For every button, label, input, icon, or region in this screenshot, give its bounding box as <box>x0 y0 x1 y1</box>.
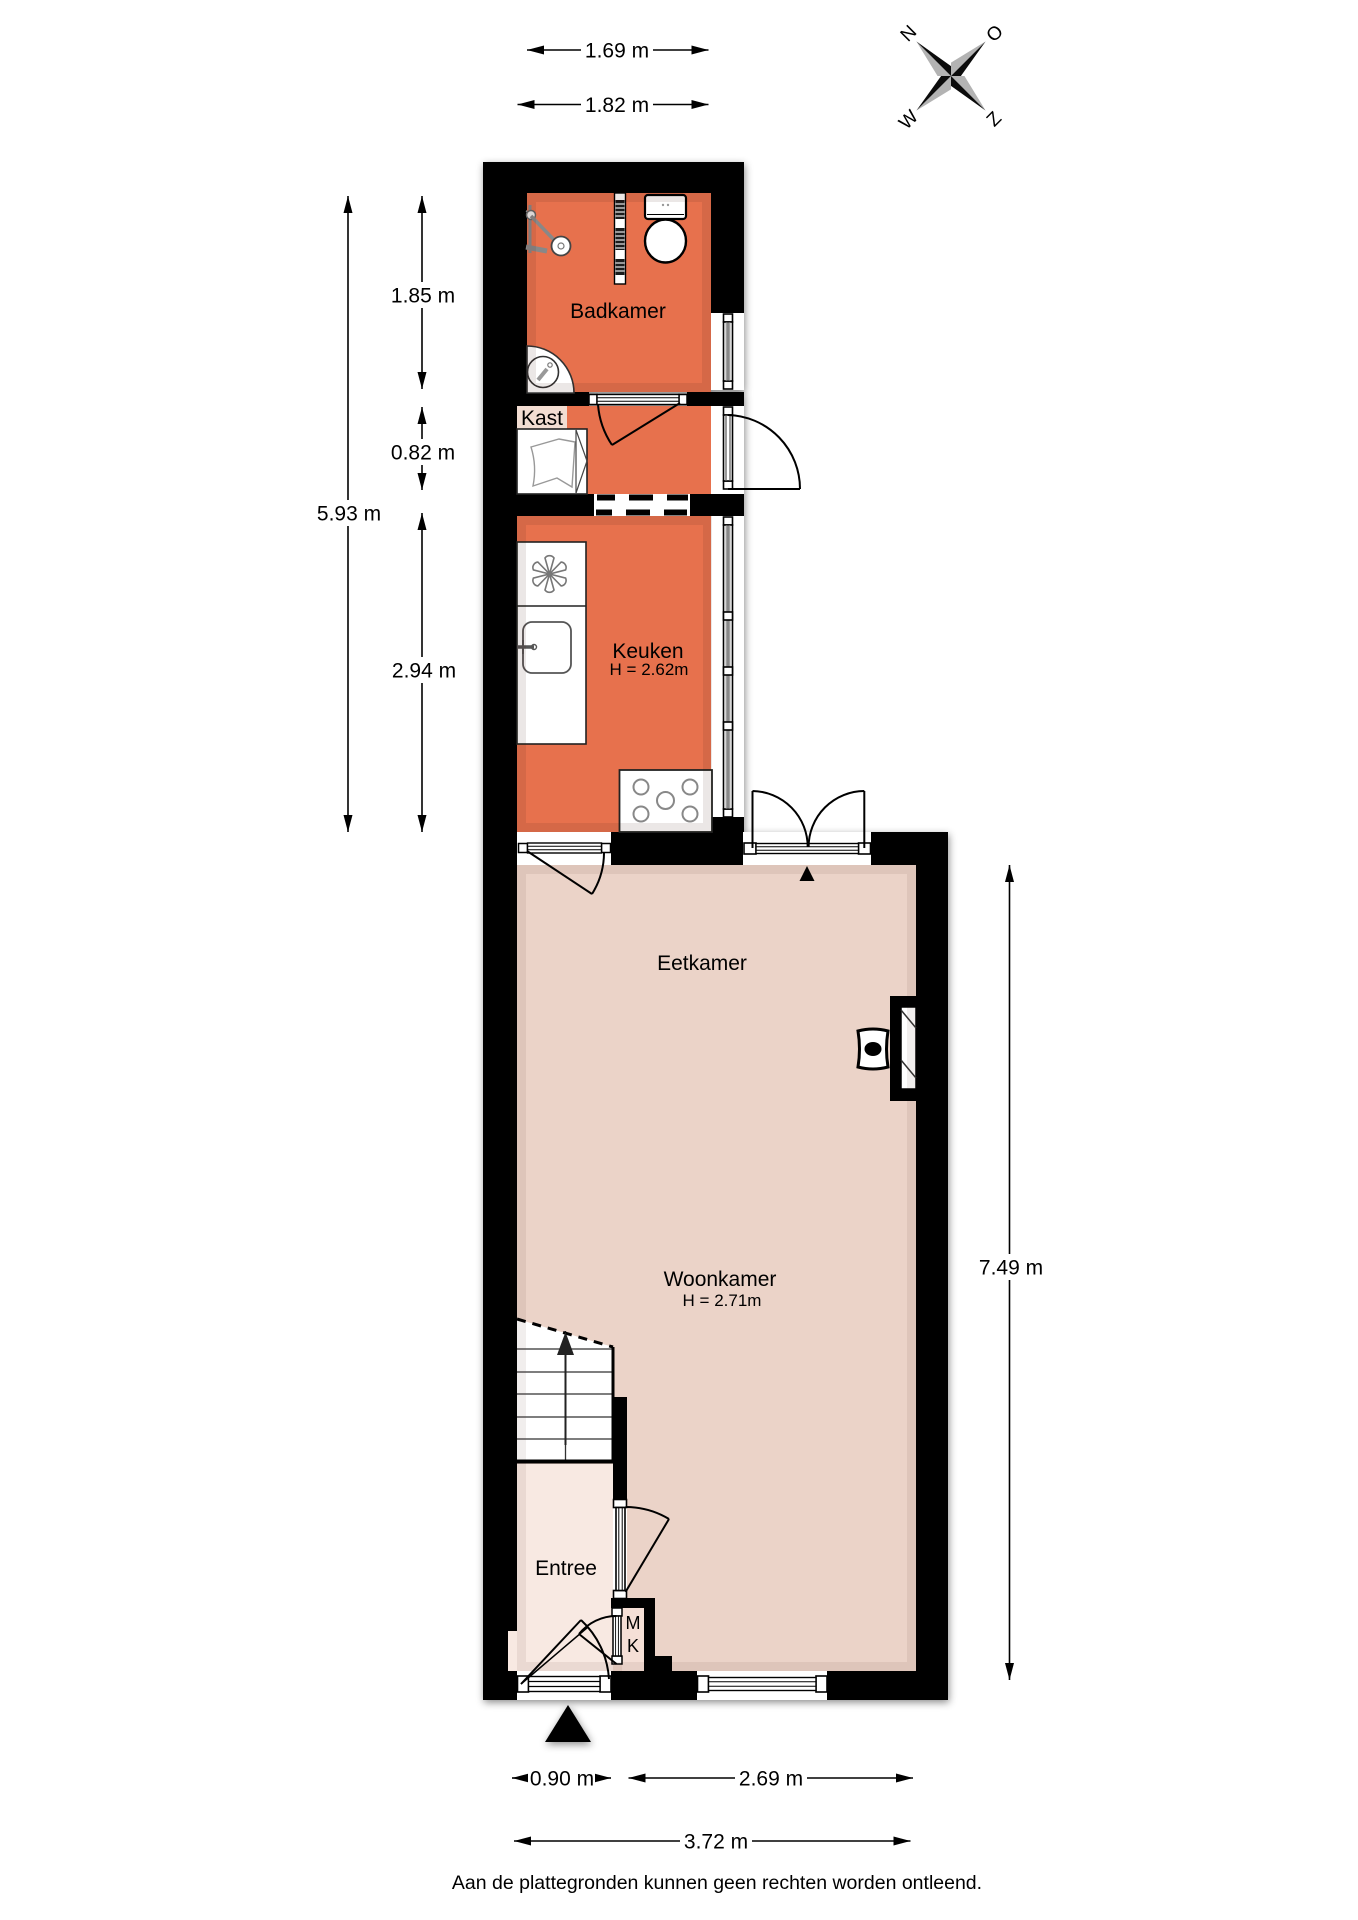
svg-text:2.94 m: 2.94 m <box>392 660 456 683</box>
svg-text:Badkamer: Badkamer <box>570 300 666 323</box>
svg-text:M: M <box>626 1613 641 1633</box>
svg-text:0.90 m: 0.90 m <box>530 1768 594 1791</box>
svg-text:K: K <box>627 1636 639 1656</box>
svg-text:Woonkamer: Woonkamer <box>664 1268 777 1291</box>
svg-text:Kast: Kast <box>521 407 563 430</box>
svg-text:Aan de plattegronden kunnen ge: Aan de plattegronden kunnen geen rechten… <box>452 1872 982 1894</box>
svg-text:3.72 m: 3.72 m <box>684 1831 748 1854</box>
svg-text:H = 2.62m: H = 2.62m <box>610 660 689 679</box>
svg-text:0.82 m: 0.82 m <box>391 442 455 465</box>
svg-text:1.82 m: 1.82 m <box>585 94 649 117</box>
svg-text:1.85 m: 1.85 m <box>391 285 455 308</box>
svg-text:H = 2.71m: H = 2.71m <box>683 1291 762 1310</box>
svg-text:Entree: Entree <box>535 1557 597 1580</box>
svg-text:Eetkamer: Eetkamer <box>657 952 747 975</box>
svg-text:O: O <box>983 21 1008 46</box>
svg-text:W: W <box>895 106 923 134</box>
svg-text:1.69 m: 1.69 m <box>585 40 649 63</box>
svg-text:7.49 m: 7.49 m <box>979 1257 1043 1280</box>
svg-text:Z: Z <box>983 108 1006 131</box>
svg-text:2.69 m: 2.69 m <box>739 1768 803 1791</box>
svg-text:5.93 m: 5.93 m <box>317 503 381 526</box>
